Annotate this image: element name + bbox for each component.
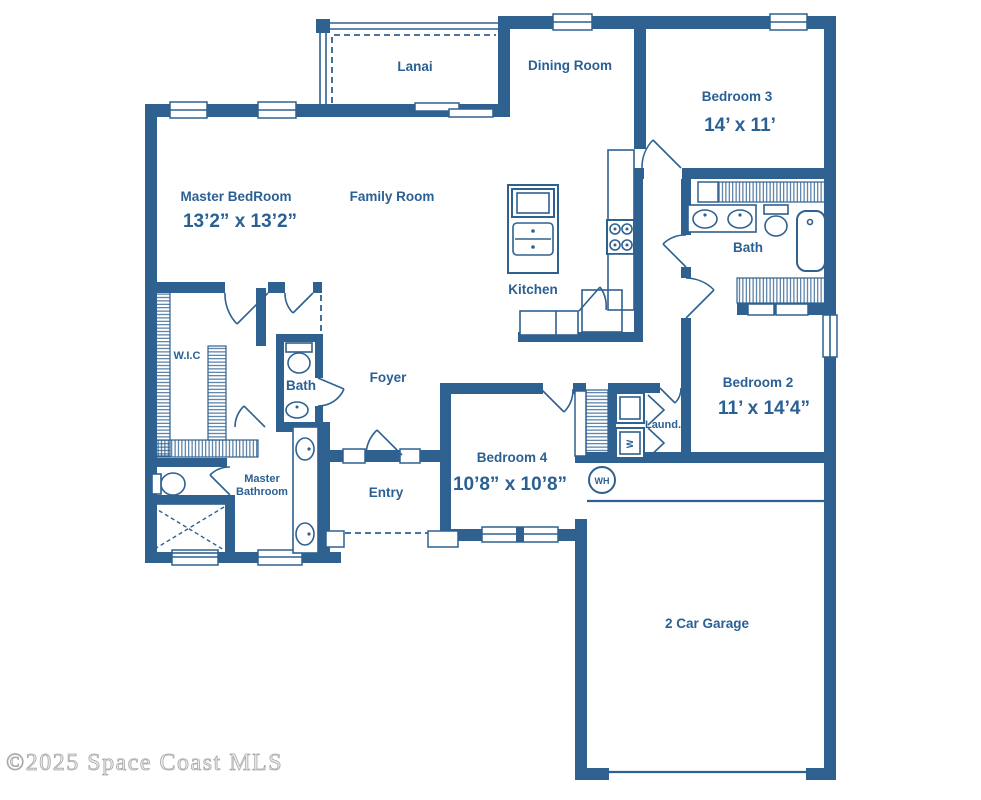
bedroom2-dims: 11’ x 14’4” bbox=[718, 398, 810, 419]
family-room-label: Family Room bbox=[350, 189, 435, 204]
foyer-label: Foyer bbox=[370, 370, 408, 385]
toilet-icon bbox=[764, 205, 788, 236]
water-heater-icon: WH bbox=[589, 467, 615, 493]
water-heater-label: WH bbox=[595, 476, 610, 486]
master-bedroom-label: Master BedRoom bbox=[180, 189, 291, 204]
entry-label: Entry bbox=[369, 485, 404, 500]
toilet-icon bbox=[286, 343, 312, 373]
window bbox=[823, 315, 837, 357]
hall-bath-door bbox=[318, 378, 344, 406]
bedroom2-closet-hatch bbox=[737, 278, 825, 303]
bedroom3-dims: 14’ x 11’ bbox=[704, 115, 776, 136]
toilet-room-door bbox=[210, 467, 230, 495]
entry-sidelite bbox=[400, 449, 420, 463]
window bbox=[170, 102, 207, 118]
vanity bbox=[688, 205, 756, 232]
hall-door bbox=[285, 293, 313, 313]
bedroom3-door bbox=[642, 140, 681, 168]
closet-bifold-door bbox=[575, 391, 586, 456]
master-bath-door bbox=[235, 406, 265, 427]
bath-right-fixtures bbox=[688, 205, 825, 271]
bathtub-icon bbox=[797, 211, 825, 271]
kitchen-counter bbox=[608, 150, 634, 220]
bedroom4-closet-hatch bbox=[586, 390, 608, 458]
washer-label: W bbox=[625, 439, 635, 448]
closet-bifold-door bbox=[698, 182, 718, 202]
floor-plan-image: W WH Lanai Dining Room Bedroom 3 14’ x 1… bbox=[0, 0, 981, 800]
laundry-label: Laund. bbox=[645, 419, 681, 431]
floor-plan-svg: W WH Lanai Dining Room Bedroom 3 14’ x 1… bbox=[0, 0, 981, 800]
closet-sliding-door bbox=[748, 304, 774, 315]
pedestal-sink-icon bbox=[286, 402, 308, 418]
dining-room-label: Dining Room bbox=[528, 58, 612, 73]
bedroom3-label: Bedroom 3 bbox=[702, 89, 773, 104]
closet-sliding-door bbox=[776, 304, 808, 315]
lanai-label: Lanai bbox=[397, 59, 432, 74]
window bbox=[770, 14, 807, 30]
garage-label: 2 Car Garage bbox=[665, 616, 750, 631]
porch-post bbox=[428, 531, 458, 547]
kitchen-counter bbox=[608, 254, 634, 310]
bath-door bbox=[663, 235, 686, 267]
bedroom4-dims: 10’8” x 10’8” bbox=[453, 474, 567, 495]
wic-shelf-hatch bbox=[208, 346, 226, 440]
master-bath-label-2: Bathroom bbox=[236, 486, 288, 498]
window bbox=[482, 527, 558, 542]
wic-label: W.I.C bbox=[174, 350, 201, 362]
kitchen-label: Kitchen bbox=[508, 282, 558, 297]
shower-icon bbox=[150, 504, 227, 553]
bedroom4-label: Bedroom 4 bbox=[477, 450, 548, 465]
stove-icon bbox=[607, 220, 634, 254]
master-bath-label-1: Master bbox=[244, 473, 280, 485]
window bbox=[553, 14, 592, 30]
bedroom2-label: Bedroom 2 bbox=[723, 375, 794, 390]
kitchen-sink-icon bbox=[513, 223, 553, 255]
garage-hall-door bbox=[660, 388, 681, 403]
kitchen-fixtures bbox=[508, 150, 634, 335]
wic-shelf-hatch bbox=[152, 292, 170, 456]
kitchen-counter bbox=[520, 311, 578, 335]
entry-porch bbox=[326, 531, 458, 547]
garage-lines bbox=[587, 501, 824, 772]
watermark-text: ©2025 Space Coast MLS bbox=[6, 750, 283, 776]
hall-linen-closet-hatch bbox=[718, 182, 825, 202]
room-labels: Lanai Dining Room Bedroom 3 14’ x 11’ Ma… bbox=[174, 58, 810, 631]
bedroom4-door bbox=[541, 389, 573, 412]
toilet-icon bbox=[152, 473, 185, 495]
master-bedroom-dims: 13’2” x 13’2” bbox=[183, 211, 297, 232]
entry-sidelite bbox=[343, 449, 365, 463]
hall-bath-label: Bath bbox=[286, 378, 316, 393]
porch-post bbox=[326, 531, 344, 547]
bath-label: Bath bbox=[733, 240, 763, 255]
window bbox=[258, 102, 296, 118]
refrigerator-icon bbox=[512, 189, 554, 217]
wic-shelf-hatch bbox=[152, 440, 258, 457]
bedroom2-door bbox=[686, 278, 714, 318]
